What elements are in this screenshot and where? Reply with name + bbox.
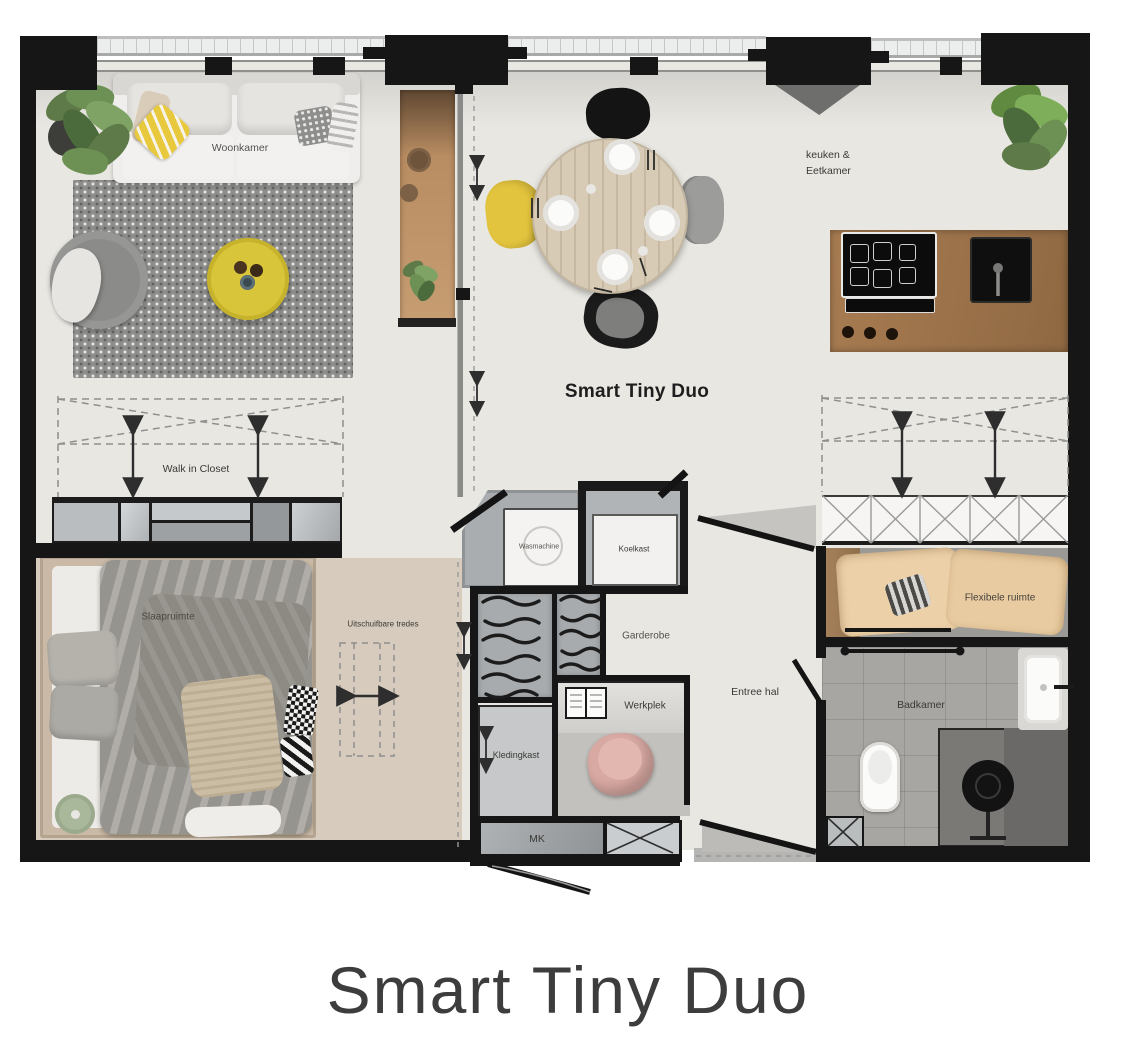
partition-handle xyxy=(456,288,470,300)
wall-pier xyxy=(385,35,508,85)
toilet-seat xyxy=(868,750,892,784)
coffee-table-cup xyxy=(240,275,255,290)
coffee-table-bowl xyxy=(250,264,263,277)
bed-pillow xyxy=(49,684,120,741)
plate xyxy=(543,195,579,231)
wall-pier xyxy=(871,51,889,63)
daybed-base-line xyxy=(845,628,951,632)
shower-panel xyxy=(1004,728,1068,847)
wall-bottom-mid xyxy=(470,854,680,866)
wall-segment xyxy=(684,675,690,805)
wall-mullion xyxy=(205,57,232,75)
wall-pier xyxy=(748,49,766,61)
exterior-door-leaf xyxy=(488,864,590,892)
wall-segment xyxy=(600,592,606,680)
hob-control-strip xyxy=(845,298,935,313)
closet-cell xyxy=(253,503,292,541)
coffee-table-bowl xyxy=(234,261,247,274)
hanger-section xyxy=(557,592,600,676)
plate xyxy=(604,139,640,175)
stool xyxy=(407,148,431,172)
induction-hob xyxy=(841,232,937,298)
bed-throw xyxy=(179,673,284,799)
hob-zone xyxy=(873,269,892,288)
desk xyxy=(558,681,684,733)
wall-segment xyxy=(816,700,826,858)
entry-threshold xyxy=(694,848,816,862)
plate xyxy=(644,205,680,241)
closet-cell xyxy=(152,503,253,523)
folding-closet-bottom-line xyxy=(822,541,1068,545)
wall-pier xyxy=(508,47,527,59)
closet-row xyxy=(52,501,342,543)
wall-pier xyxy=(766,37,871,85)
wall-bedroom-head xyxy=(36,543,342,558)
window-sill xyxy=(97,36,385,56)
hob-zone xyxy=(850,244,869,263)
wall-segment xyxy=(552,677,558,818)
closet-cell xyxy=(292,503,340,541)
plate xyxy=(597,249,633,285)
hob-zone xyxy=(899,267,916,284)
wall-mullion xyxy=(630,57,658,75)
page-title: Smart Tiny Duo xyxy=(0,952,1136,1028)
hob-zone xyxy=(850,267,869,286)
wall-pier xyxy=(363,47,385,59)
wardrobe-cabinet xyxy=(478,705,556,819)
wall-left xyxy=(20,36,36,858)
counter-knob xyxy=(886,328,898,340)
desk-chair-seat xyxy=(598,738,642,780)
daybed-cushion xyxy=(945,548,1069,636)
room-label-keuken-eetkamer: keuken & Eetkamer xyxy=(806,147,851,179)
cushion-striped xyxy=(279,734,314,778)
partition-post xyxy=(455,84,473,94)
cup xyxy=(638,246,648,256)
stool xyxy=(400,184,418,202)
washing-machine-drum xyxy=(523,526,563,566)
bed-pillow xyxy=(46,630,120,689)
closet-cell xyxy=(121,503,152,541)
room-label-line: keuken & xyxy=(806,147,851,163)
room-label-line: Eetkamer xyxy=(806,163,851,179)
hanger-section xyxy=(478,592,552,698)
wall-segment xyxy=(470,586,688,594)
bedside-table-knob xyxy=(71,810,80,819)
counter-knob xyxy=(864,327,876,339)
wall-mullion xyxy=(313,57,345,75)
bed-pillow-white xyxy=(185,804,282,837)
wall-segment xyxy=(470,816,680,822)
closet-cell xyxy=(54,503,121,541)
wall-right xyxy=(1068,33,1090,858)
fridge xyxy=(592,514,678,586)
wall-segment xyxy=(470,816,478,862)
bathtub xyxy=(1018,648,1068,730)
hob-zone xyxy=(899,244,916,261)
kitchen-sink xyxy=(970,237,1032,303)
wall-segment xyxy=(556,675,690,681)
bathtub-drain xyxy=(1040,684,1047,691)
window-sill xyxy=(508,36,766,56)
washing-machine xyxy=(503,508,580,587)
hob-zone xyxy=(873,242,892,261)
closet-cell xyxy=(152,523,253,541)
wall-mullion xyxy=(940,57,962,75)
wall-segment xyxy=(470,697,552,703)
floorplan-page: { "page": { "title": "Smart Tiny Duo" },… xyxy=(0,0,1136,1050)
door-swing-arc xyxy=(492,866,590,892)
wall-segment xyxy=(470,586,478,820)
wall-bottom-right xyxy=(816,846,1090,862)
folding-closet xyxy=(822,495,1068,545)
wall-segment xyxy=(822,637,1090,647)
wall-bottom-left xyxy=(20,840,478,862)
cup xyxy=(586,184,596,194)
counter-knob xyxy=(842,326,854,338)
sideboard-edge xyxy=(398,318,456,327)
